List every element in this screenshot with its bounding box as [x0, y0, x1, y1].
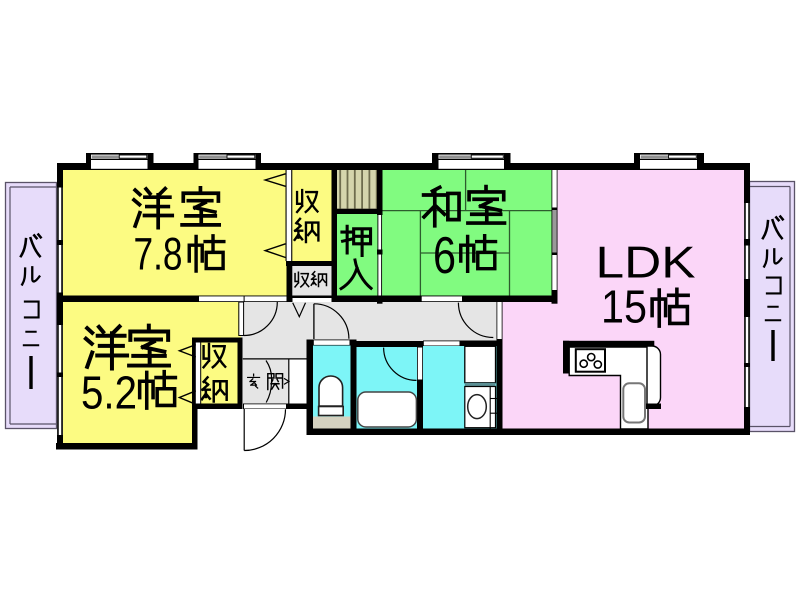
svg-text:5.2: 5.2	[81, 367, 137, 419]
svg-text:7.8: 7.8	[134, 229, 183, 280]
svg-text:15: 15	[601, 281, 647, 333]
svg-text:6: 6	[433, 227, 456, 285]
